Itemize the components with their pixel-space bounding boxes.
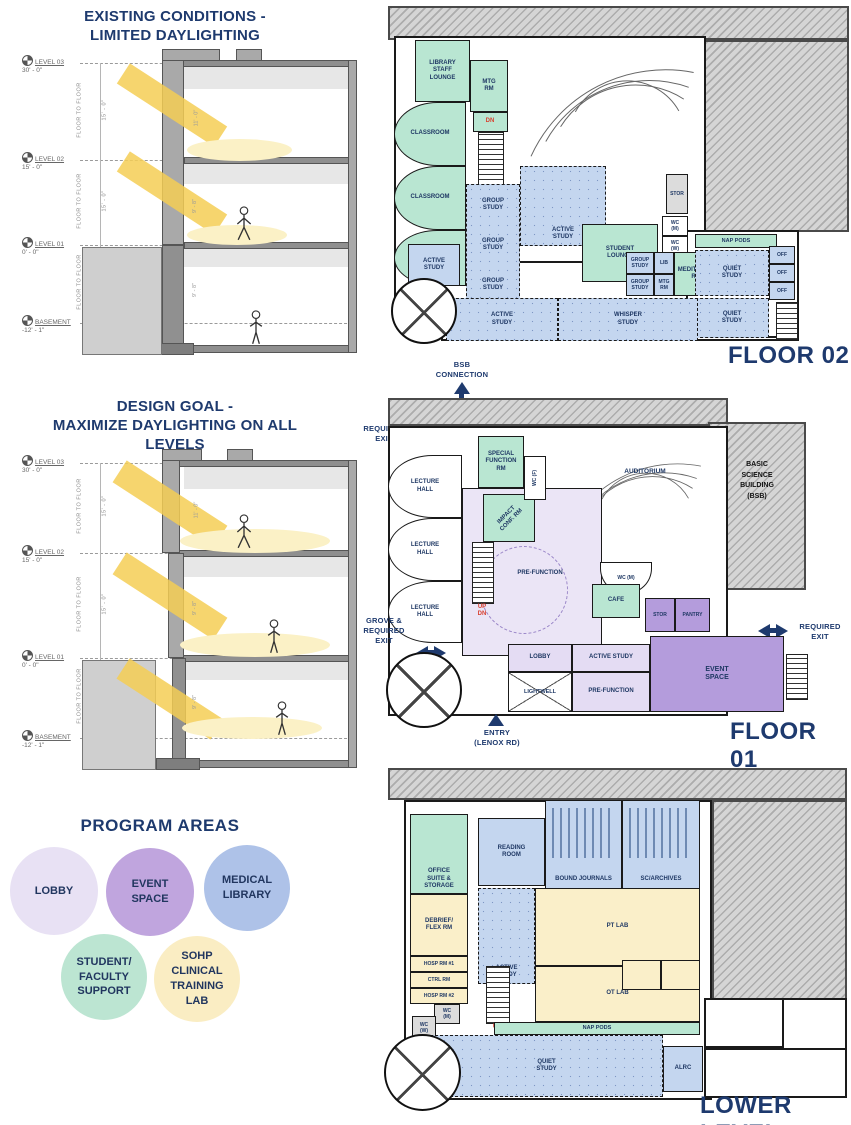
- floor-to-floor-label: FLOOR TO FLOOR: [77, 478, 83, 533]
- room-bound-journals: BOUND JOURNALS: [545, 800, 622, 892]
- room-nap-pods: NAP PODS: [494, 1022, 700, 1035]
- room-lightwell: LIGHTWELL: [508, 672, 572, 712]
- room-stor: STOR: [666, 174, 688, 214]
- level-name: LEVEL 03: [35, 59, 64, 66]
- existing-conditions-title: EXISTING CONDITIONS - LIMITED DAYLIGHTIN…: [40, 8, 310, 46]
- room-nap-pods: NAP PODS: [695, 234, 777, 248]
- level-datum-icon: [22, 315, 33, 326]
- roof-slab: [162, 460, 354, 467]
- room-stor: STOR: [645, 598, 675, 632]
- entry-arrow-icon: [488, 714, 504, 726]
- room-cafe: CAFE: [592, 584, 640, 618]
- grove-required-exit-label: GROVE & REQUIRED EXIT: [350, 616, 418, 645]
- floor-to-floor-dim: 15' - 0": [102, 495, 108, 516]
- level-elev: 0' - 0": [22, 249, 39, 256]
- auditorium-seating-arcs: [500, 38, 700, 176]
- room-reading-room: READING ROOM: [478, 818, 545, 886]
- room-off-2: OFF: [769, 264, 795, 282]
- room-height-dim: 9' - 8": [192, 199, 198, 213]
- room-pantry: PANTRY: [675, 598, 710, 632]
- sc-archives-label: SC/ARCHIVES: [623, 876, 699, 883]
- shelving: [629, 808, 693, 858]
- room-quiet-study-2: QUIET STUDY: [695, 298, 769, 338]
- room-small-yellow: [661, 960, 700, 990]
- room-pre-function-2: PRE-FUNCTION: [572, 672, 650, 712]
- person-figure: [246, 309, 266, 347]
- daylight-pool: [180, 633, 330, 657]
- ceiling-zone: [184, 467, 354, 489]
- rear-wall: [348, 60, 357, 353]
- stair: [786, 654, 808, 700]
- program-areas-title: PROGRAM AREAS: [55, 816, 265, 836]
- floor-to-floor-dim: 15' - 0": [102, 190, 108, 211]
- ceiling-zone: [184, 557, 354, 577]
- room-sc-archives: SC/ARCHIVES: [622, 800, 700, 892]
- level-elev: 0' - 0": [22, 662, 39, 669]
- room-mtg-rm-2: MTG RM: [654, 274, 674, 296]
- level-datum-icon: [22, 152, 33, 163]
- room-group-study-a: GROUP STUDY: [626, 252, 654, 274]
- lower-level-plan: OFFICE SUITE & STORAGE READING ROOM BOUN…: [384, 762, 851, 1125]
- room-alrc: ALRC: [663, 1046, 703, 1092]
- room-library-staff-lounge: LIBRARY STAFF LOUNGE: [415, 40, 470, 102]
- person-figure: [272, 700, 292, 738]
- room-wc-m: WC (M): [662, 216, 688, 236]
- stair: [486, 966, 510, 1024]
- floor-to-floor-label: FLOOR TO FLOOR: [77, 576, 83, 631]
- program-area-student-faculty-support: STUDENT/ FACULTY SUPPORT: [61, 934, 147, 1020]
- program-area-lobby: LOBBY: [10, 847, 98, 935]
- ceiling-zone: [184, 662, 354, 680]
- room-pt-lab: PT LAB: [535, 888, 700, 966]
- person-figure: [264, 618, 284, 656]
- stair-tower: [391, 278, 457, 344]
- design-goal-title: DESIGN GOAL - MAXIMIZE DAYLIGHTING ON AL…: [25, 398, 325, 454]
- stair: [472, 542, 494, 604]
- site-ground: [82, 247, 162, 355]
- daylight-pool: [180, 529, 330, 553]
- room-height-dim: 9' - 8": [192, 283, 198, 297]
- level-elev: -12' - 1": [22, 327, 44, 334]
- level-tag: LEVEL 0215' - 0": [22, 152, 80, 172]
- room-height-dim: 11' - 0": [193, 502, 199, 519]
- room-ctrl-rm: CTRL RM: [410, 972, 468, 988]
- room-impact-conf-rm: IMPACT CONF. RM: [483, 494, 535, 542]
- impact-conf-label: IMPACT CONF. RM: [494, 503, 525, 534]
- level-tag: LEVEL 010' - 0": [22, 650, 80, 670]
- room-special-function-rm: SPECIAL FUNCTION RM: [478, 436, 524, 488]
- program-area-medical-library: MEDICAL LIBRARY: [204, 845, 290, 931]
- room-lobby: LOBBY: [508, 644, 572, 672]
- room-hosp-rm-2: HOSP RM #2: [410, 988, 468, 1004]
- room-off-3: OFF: [769, 282, 795, 300]
- program-area-event-space: EVENT SPACE: [106, 848, 194, 936]
- level-tag: LEVEL 0215' - 0": [22, 545, 80, 565]
- room-auditorium-label: AUDITORIUM: [600, 468, 690, 475]
- group-study-label: GROUP STUDY: [482, 278, 504, 292]
- level-elev: 30' - 0": [22, 467, 42, 474]
- lower-level-name: LOWER LEVEL: [700, 1092, 851, 1125]
- level-tag: BASEMENT-12' - 1": [22, 315, 80, 335]
- existing-building-hatch: [388, 768, 847, 800]
- room-hosp-rm-1: HOSP RM #1: [410, 956, 468, 972]
- stair-tower: [386, 652, 462, 728]
- open-active-study-bottom: ACTIVE STUDY: [446, 298, 558, 341]
- daylight-pool: [187, 139, 292, 161]
- floor-to-floor-label: FLOOR TO FLOOR: [77, 173, 83, 228]
- existing-building-hatch: [712, 800, 847, 1000]
- stair: [478, 132, 504, 186]
- stair: [776, 302, 798, 340]
- existing-building-hatch: [388, 398, 728, 426]
- floor-to-floor-dim: 15' - 0": [102, 99, 108, 120]
- level-elev: 30' - 0": [22, 67, 42, 74]
- floor01-plan: BSB CONNECTION BASIC SCIENCE BUILDING (B…: [350, 360, 851, 756]
- floor-to-floor-label: FLOOR TO FLOOR: [77, 82, 83, 137]
- room-wc-m: WC (M): [434, 1004, 460, 1024]
- level-elev: -12' - 1": [22, 742, 44, 749]
- presentation-page: EXISTING CONDITIONS - LIMITED DAYLIGHTIN…: [0, 0, 851, 1125]
- room-office-suite-storage: OFFICE SUITE & STORAGE: [410, 814, 468, 894]
- level-elev: 15' - 0": [22, 557, 42, 564]
- stair-tower: [384, 1034, 461, 1111]
- person-figure: [234, 513, 254, 551]
- existing-section-diagram: LEVEL 0330' - 0" LEVEL 0215' - 0" LEVEL …: [22, 55, 357, 357]
- level-datum-icon: [22, 455, 33, 466]
- room-height-dim: 9' - 8": [192, 695, 198, 709]
- person-figure: [234, 205, 254, 243]
- group-study-label: GROUP STUDY: [482, 238, 504, 252]
- existing-building-hatch: [388, 6, 849, 40]
- ceiling-zone: [184, 164, 354, 184]
- level-name: LEVEL 03: [35, 459, 64, 466]
- level-name: LEVEL 02: [35, 156, 64, 163]
- mech-room: [704, 998, 784, 1048]
- group-study-label: GROUP STUDY: [482, 198, 504, 212]
- design-goal-section-diagram: LEVEL 0330' - 0" LEVEL 0215' - 0" LEVEL …: [22, 455, 357, 770]
- room-debrief-flex-rm: DEBRIEF/ FLEX RM: [410, 894, 468, 956]
- shelving: [552, 808, 615, 858]
- open-group-study-column: GROUP STUDY GROUP STUDY GROUP STUDY: [466, 184, 520, 306]
- room-lib: LIB: [654, 252, 674, 274]
- bound-journals-label: BOUND JOURNALS: [546, 876, 621, 883]
- mech-room: [704, 1048, 847, 1098]
- room-active-study: ACTIVE STUDY: [572, 644, 650, 672]
- level-name: LEVEL 01: [35, 241, 64, 248]
- level-name: BASEMENT: [35, 319, 71, 326]
- level-tag: BASEMENT-12' - 1": [22, 730, 80, 750]
- level-name: LEVEL 01: [35, 654, 64, 661]
- ceiling-zone: [184, 67, 354, 89]
- program-area-sohp-clinical-training-lab: SOHP CLINICAL TRAINING LAB: [154, 936, 240, 1022]
- room-wc-f: WC (F): [524, 456, 546, 500]
- room-mtg-rm: MTG RM: [470, 60, 508, 112]
- room-pre-function-label: PRE-FUNCTION: [490, 570, 590, 576]
- wc-f-label: WC (F): [532, 470, 538, 486]
- level-tag: LEVEL 0330' - 0": [22, 455, 80, 475]
- room-height-dim: 9' - 8": [192, 601, 198, 615]
- open-whisper-study: WHISPER STUDY: [558, 298, 698, 341]
- floor02-plan: LIBRARY STAFF LOUNGE CLASSROOM CLASSROOM…: [386, 6, 851, 342]
- level-datum-icon: [22, 730, 33, 741]
- daylight-pool: [182, 717, 322, 739]
- ceiling-zone: [184, 249, 354, 267]
- open-quiet-study: QUIET STUDY: [430, 1035, 663, 1097]
- room-height-dim: 11' - 0": [193, 110, 199, 127]
- foundation-wall: [162, 245, 184, 345]
- level-elev: 15' - 0": [22, 164, 42, 171]
- entry-lenox-label: ENTRY (LENOX RD): [458, 728, 536, 748]
- footing: [156, 758, 200, 770]
- bsb-connection-label: BSB CONNECTION: [422, 360, 502, 380]
- required-exit-right-label: REQUIRED EXIT: [790, 622, 850, 642]
- room-group-study-b: GROUP STUDY: [626, 274, 654, 296]
- floor-to-floor-dim: 15' - 0": [102, 593, 108, 614]
- roof-slab: [162, 60, 354, 67]
- room-event-space: EVENT SPACE: [650, 636, 784, 712]
- level-datum-icon: [22, 237, 33, 248]
- stair-dn-label: DN: [478, 118, 502, 125]
- level-name: BASEMENT: [35, 734, 71, 741]
- level-datum-icon: [22, 650, 33, 661]
- level-tag: LEVEL 0330' - 0": [22, 55, 80, 75]
- level-datum-icon: [22, 55, 33, 66]
- existing-building-hatch: [704, 40, 849, 232]
- room-small-yellow: [622, 960, 661, 990]
- room-quiet-study-1: QUIET STUDY: [695, 250, 769, 296]
- bsb-building-label: BASIC SCIENCE BUILDING (BSB): [708, 460, 806, 502]
- level-datum-icon: [22, 545, 33, 556]
- stair-up-dn-label: UP DN: [468, 604, 496, 617]
- level-tag: LEVEL 010' - 0": [22, 237, 80, 257]
- room-off-1: OFF: [769, 246, 795, 264]
- level-name: LEVEL 02: [35, 549, 64, 556]
